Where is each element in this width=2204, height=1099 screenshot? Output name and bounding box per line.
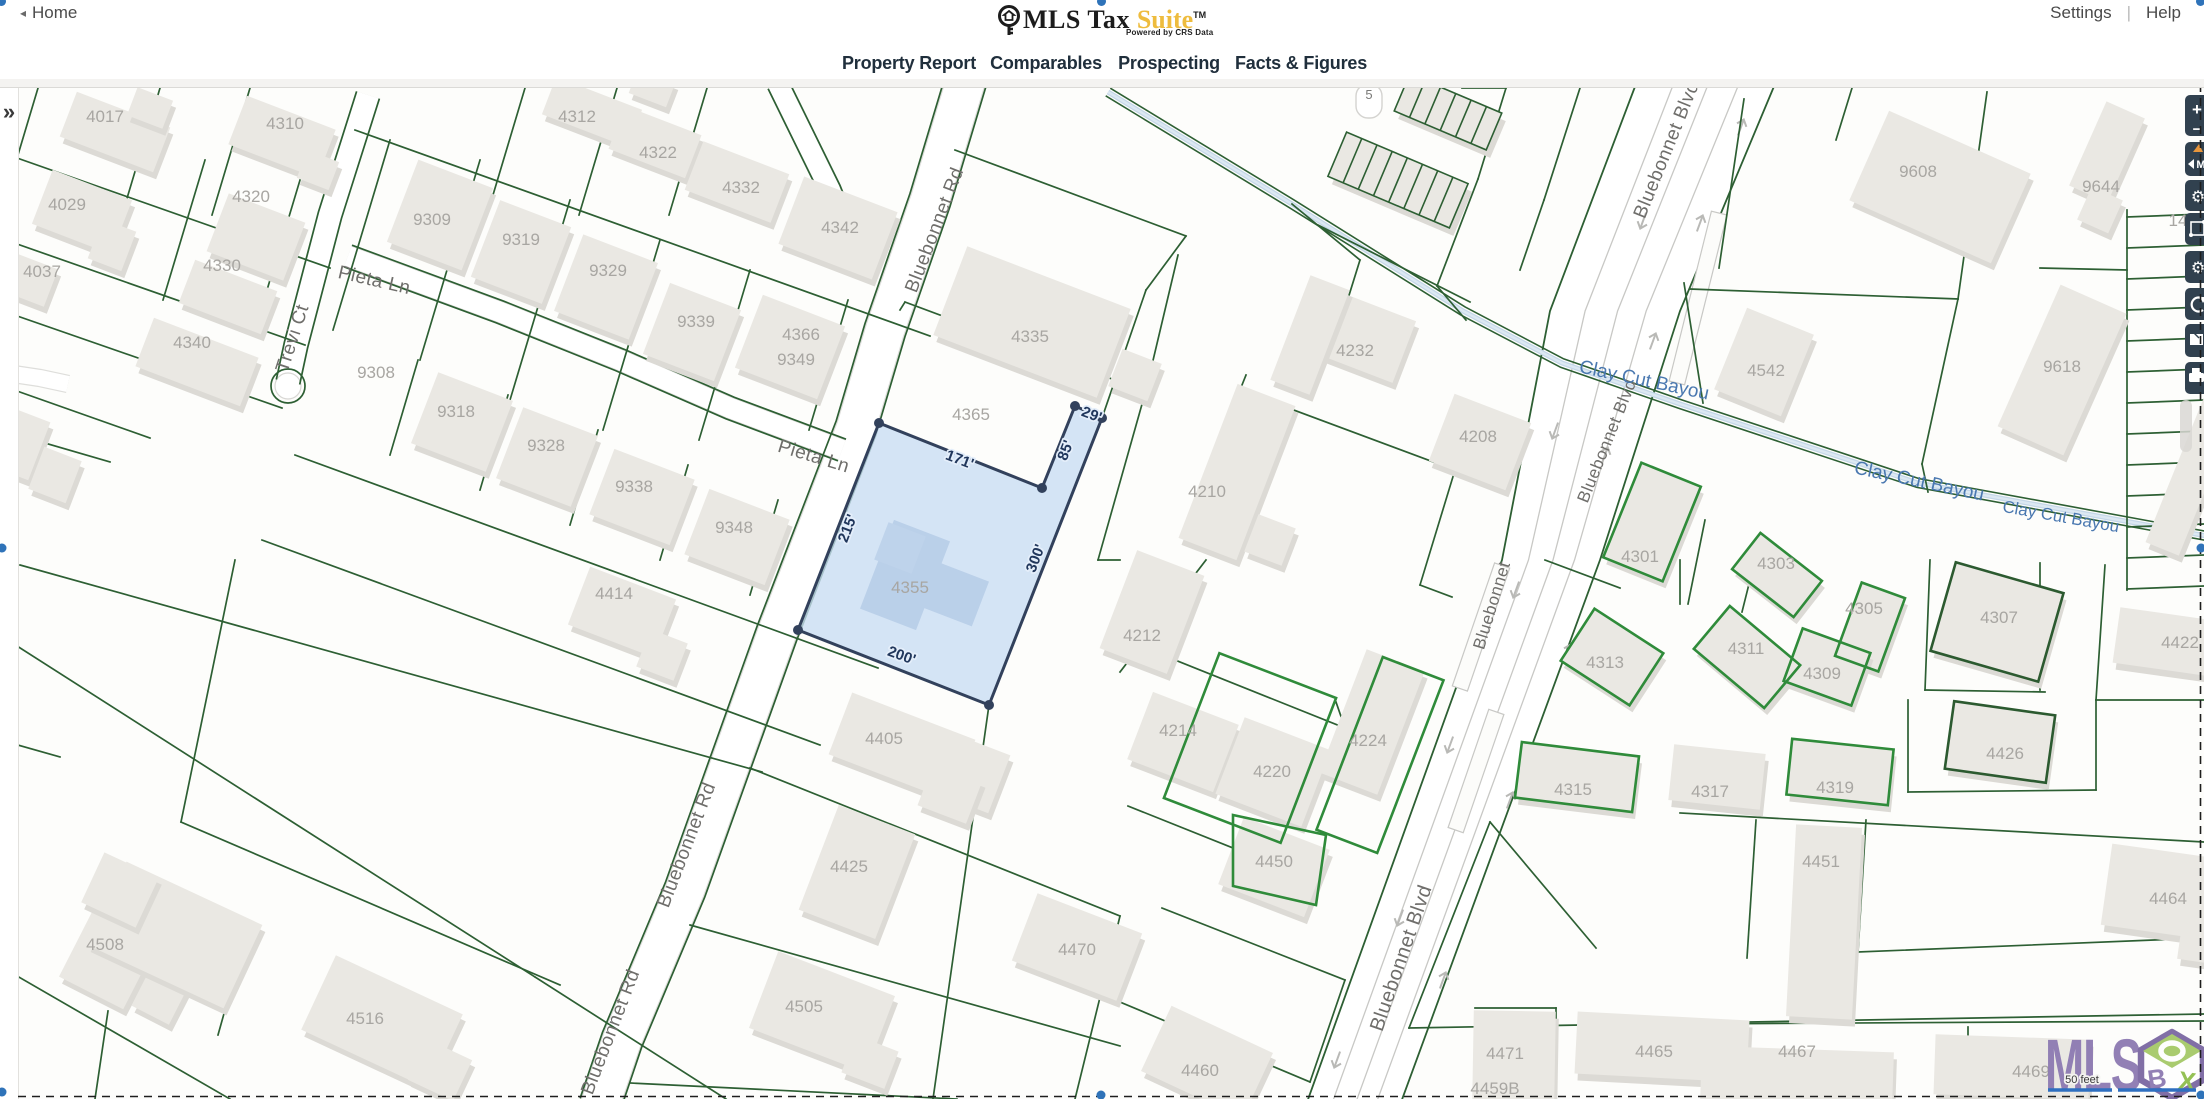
svg-text:4320: 4320 [232,187,270,206]
svg-text:4307: 4307 [1980,608,2018,627]
svg-text:4332: 4332 [722,178,760,197]
svg-text:9608: 9608 [1899,162,1937,181]
svg-text:9328: 9328 [527,436,565,455]
svg-text:4450: 4450 [1255,852,1293,871]
svg-text:9308: 9308 [357,363,395,382]
svg-text:9618: 9618 [2043,357,2081,376]
svg-text:4313: 4313 [1586,653,1624,672]
svg-text:9349: 9349 [777,350,815,369]
svg-text:4311: 4311 [1728,639,1765,658]
svg-text:4210: 4210 [1188,482,1226,501]
svg-text:4542: 4542 [1747,361,1785,380]
svg-text:4301: 4301 [1621,547,1659,566]
svg-text:4467: 4467 [1778,1042,1816,1061]
svg-text:4365: 4365 [952,405,990,424]
svg-text:14: 14 [2169,211,2188,230]
svg-text:50 feet: 50 feet [2065,1074,2099,1086]
svg-text:4029: 4029 [48,195,86,214]
svg-text:4426: 4426 [1986,744,2024,763]
svg-text:4342: 4342 [821,218,859,237]
svg-text:4505: 4505 [785,997,823,1016]
svg-text:4425: 4425 [830,857,868,876]
svg-text:9329: 9329 [589,261,627,280]
svg-text:9318: 9318 [437,402,475,421]
svg-text:4508: 4508 [86,935,124,954]
svg-text:»: » [3,99,15,124]
svg-text:4465: 4465 [1635,1042,1673,1061]
svg-text:4312: 4312 [558,107,596,126]
svg-text:9339: 9339 [677,312,715,331]
svg-text:4220: 4220 [1253,762,1291,781]
svg-text:4208: 4208 [1459,427,1497,446]
svg-text:9309: 9309 [413,210,451,229]
svg-text:4317: 4317 [1691,782,1729,801]
svg-text:4464: 4464 [2149,889,2187,908]
svg-text:4305: 4305 [1845,599,1883,618]
svg-text:4309: 4309 [1803,664,1841,683]
svg-text:MLS: MLS [2045,1025,2141,1099]
svg-text:⚙: ⚙ [2191,189,2204,206]
svg-text:4470: 4470 [1058,940,1096,959]
svg-text:4319: 4319 [1816,778,1854,797]
svg-text:4516: 4516 [346,1009,384,1028]
svg-text:9348: 9348 [715,518,753,537]
svg-text:4017: 4017 [86,107,124,126]
svg-text:4037: 4037 [23,262,61,281]
svg-text:4460: 4460 [1181,1061,1219,1080]
svg-text:4212: 4212 [1123,626,1161,645]
svg-text:4232: 4232 [1336,341,1374,360]
svg-text:5: 5 [1365,87,1372,102]
svg-text:4366: 4366 [782,325,820,344]
svg-text:4315: 4315 [1554,780,1592,799]
svg-text:4224: 4224 [1349,731,1387,750]
svg-text:4451: 4451 [1802,852,1840,871]
svg-text:4459B: 4459B [1470,1079,1519,1098]
svg-text:⚙: ⚙ [2191,260,2204,277]
svg-text:4405: 4405 [865,729,903,748]
svg-text:4330: 4330 [203,256,241,275]
svg-text:9319: 9319 [502,230,540,249]
svg-text:4310: 4310 [266,114,304,133]
svg-text:4471: 4471 [1486,1044,1524,1063]
svg-text:4340: 4340 [173,333,211,352]
svg-text:9338: 9338 [615,477,653,496]
svg-text:4469: 4469 [2012,1062,2050,1081]
svg-text:4414: 4414 [595,584,633,603]
svg-text:4335: 4335 [1011,327,1049,346]
svg-text:4214: 4214 [1159,721,1197,740]
svg-text:4355: 4355 [891,578,929,597]
svg-text:4303: 4303 [1757,554,1795,573]
svg-text:4422: 4422 [2161,633,2199,652]
svg-text:9644: 9644 [2082,177,2120,196]
svg-text:4322: 4322 [639,143,677,162]
